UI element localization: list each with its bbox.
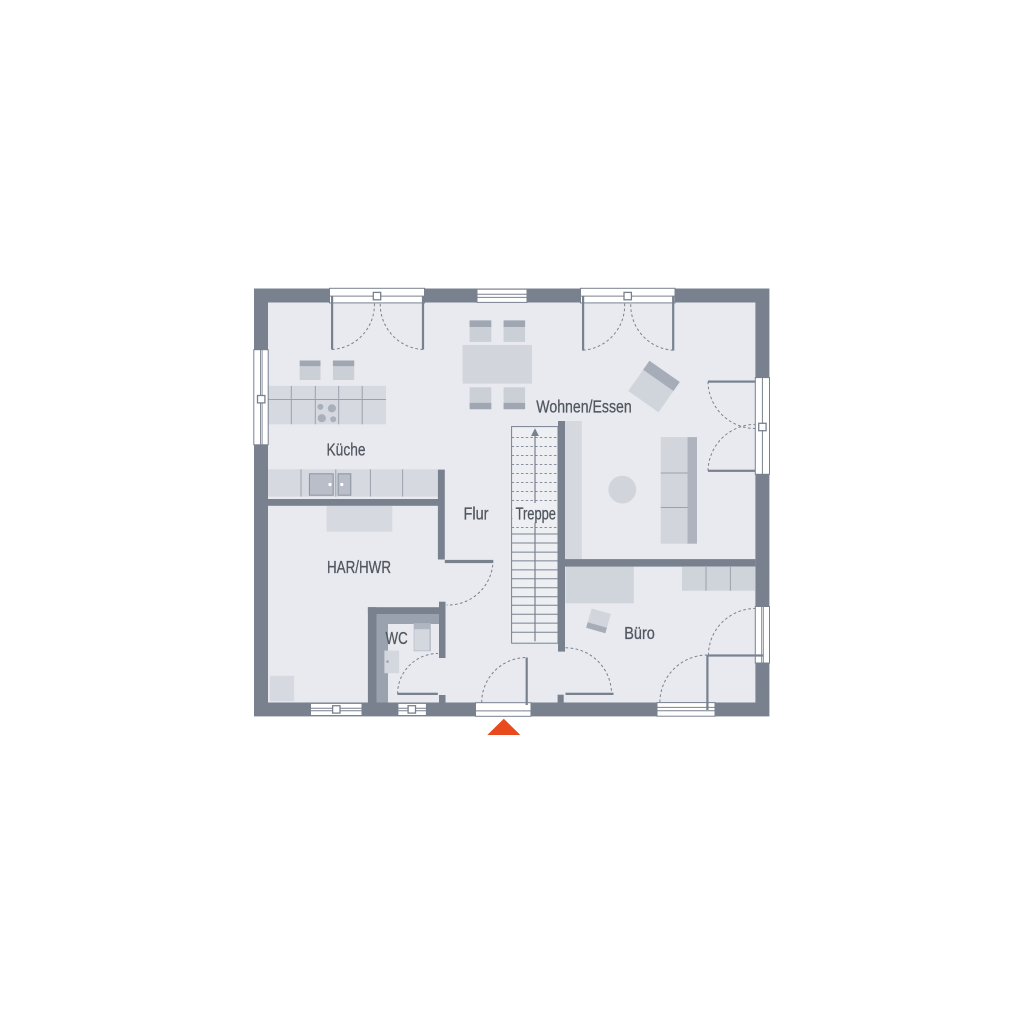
svg-text:Flur: Flur [464, 504, 489, 524]
svg-text:Treppe: Treppe [516, 504, 556, 524]
svg-text:HAR/HWR: HAR/HWR [327, 557, 391, 577]
svg-text:WC: WC [386, 628, 408, 648]
svg-text:Wohnen/Essen: Wohnen/Essen [536, 397, 631, 417]
svg-text:Büro: Büro [624, 623, 655, 643]
svg-text:Küche: Küche [327, 439, 366, 459]
